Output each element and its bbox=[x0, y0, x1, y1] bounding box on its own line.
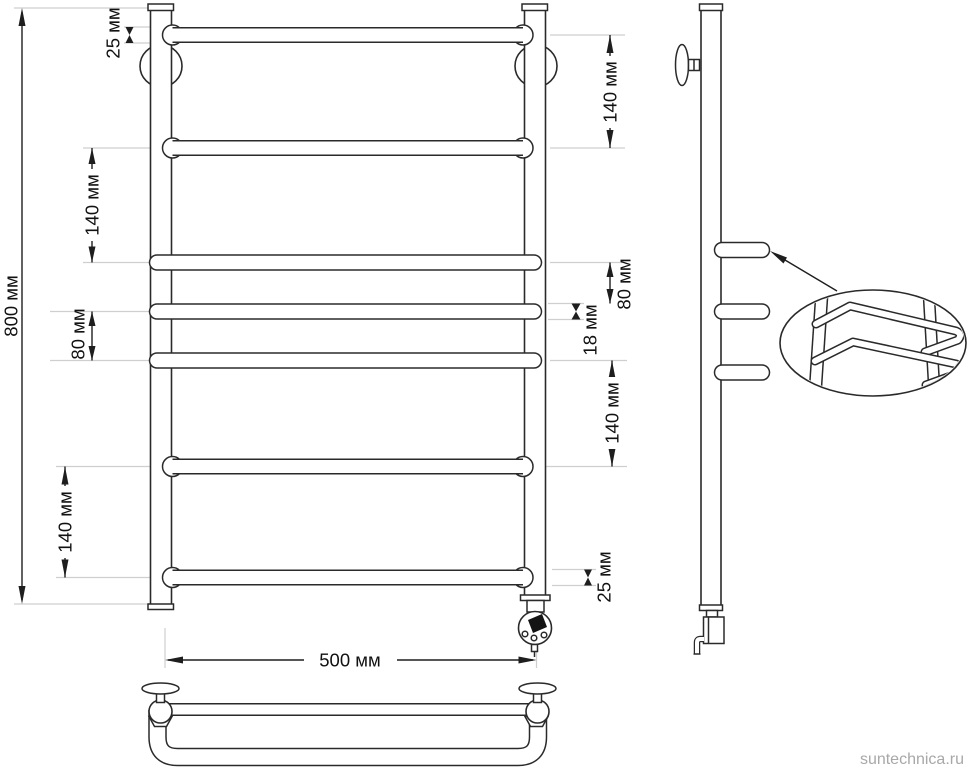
dimension-overall-width: 500 мм bbox=[165, 647, 537, 672]
post-top-cap-right bbox=[522, 4, 548, 11]
post-section-left bbox=[149, 700, 172, 723]
dimension-right-lower-gap: 140 мм bbox=[602, 361, 623, 467]
post-section-right bbox=[526, 700, 549, 723]
watermark-text: suntechnica.ru bbox=[860, 751, 964, 768]
detail-callout bbox=[770, 251, 966, 396]
dim-label-800: 800 мм bbox=[1, 275, 22, 336]
technical-drawing-svg: 800 мм 25 мм 140 мм 80 мм 140 мм 140 мм bbox=[0, 0, 970, 770]
side-protruding-rungs bbox=[722, 250, 762, 373]
dim-label-140-left-top: 140 мм bbox=[82, 174, 103, 235]
protruding-rungs bbox=[157, 263, 534, 361]
dimension-overall-height: 800 мм bbox=[1, 8, 26, 604]
dimension-left-upper-gap: 140 мм bbox=[82, 148, 103, 263]
dim-label-25-bottom: 25 мм bbox=[594, 551, 615, 602]
leader-arrowhead bbox=[770, 251, 787, 264]
dimension-top-offset: 25 мм bbox=[103, 7, 134, 58]
top-view bbox=[142, 683, 556, 757]
wall-flange-top-left bbox=[142, 683, 179, 694]
bottom-valve-fitting bbox=[694, 611, 725, 655]
dimension-right-upper-gap: 140 мм bbox=[600, 35, 621, 148]
front-view bbox=[140, 4, 557, 657]
dim-label-25-top: 25 мм bbox=[103, 7, 124, 58]
leader-line bbox=[785, 260, 837, 291]
dim-label-140-left-bottom: 140 мм bbox=[55, 491, 76, 552]
dim-label-500: 500 мм bbox=[319, 650, 380, 671]
dimension-bottom-offset: 25 мм bbox=[584, 551, 615, 602]
dim-label-18: 18 мм bbox=[580, 304, 601, 355]
post-top-cap-left bbox=[148, 4, 174, 11]
dim-label-80-left: 80 мм bbox=[68, 308, 89, 359]
dim-label-80-right: 80 мм bbox=[614, 258, 635, 309]
dimension-left-middle-gap: 80 мм bbox=[68, 308, 96, 360]
dim-label-140-right-low: 140 мм bbox=[602, 382, 623, 443]
heating-element-knob bbox=[519, 601, 552, 658]
side-view bbox=[676, 4, 763, 654]
towel-rail-technical-drawing: 800 мм 25 мм 140 мм 80 мм 140 мм 140 мм bbox=[0, 0, 970, 770]
post-right bbox=[521, 4, 551, 601]
dim-label-140-right-top: 140 мм bbox=[600, 61, 621, 122]
dimension-left-lower-gap: 140 мм bbox=[55, 467, 76, 578]
post-bottom-cap-right bbox=[521, 595, 551, 601]
dimension-tube-diameter: 18 мм bbox=[572, 304, 601, 356]
wall-flange-top-right bbox=[519, 683, 556, 694]
wall-bracket-side bbox=[676, 45, 700, 86]
dimension-right-middle-gap: 80 мм bbox=[607, 258, 635, 309]
post-bottom-cap-left bbox=[148, 604, 174, 610]
